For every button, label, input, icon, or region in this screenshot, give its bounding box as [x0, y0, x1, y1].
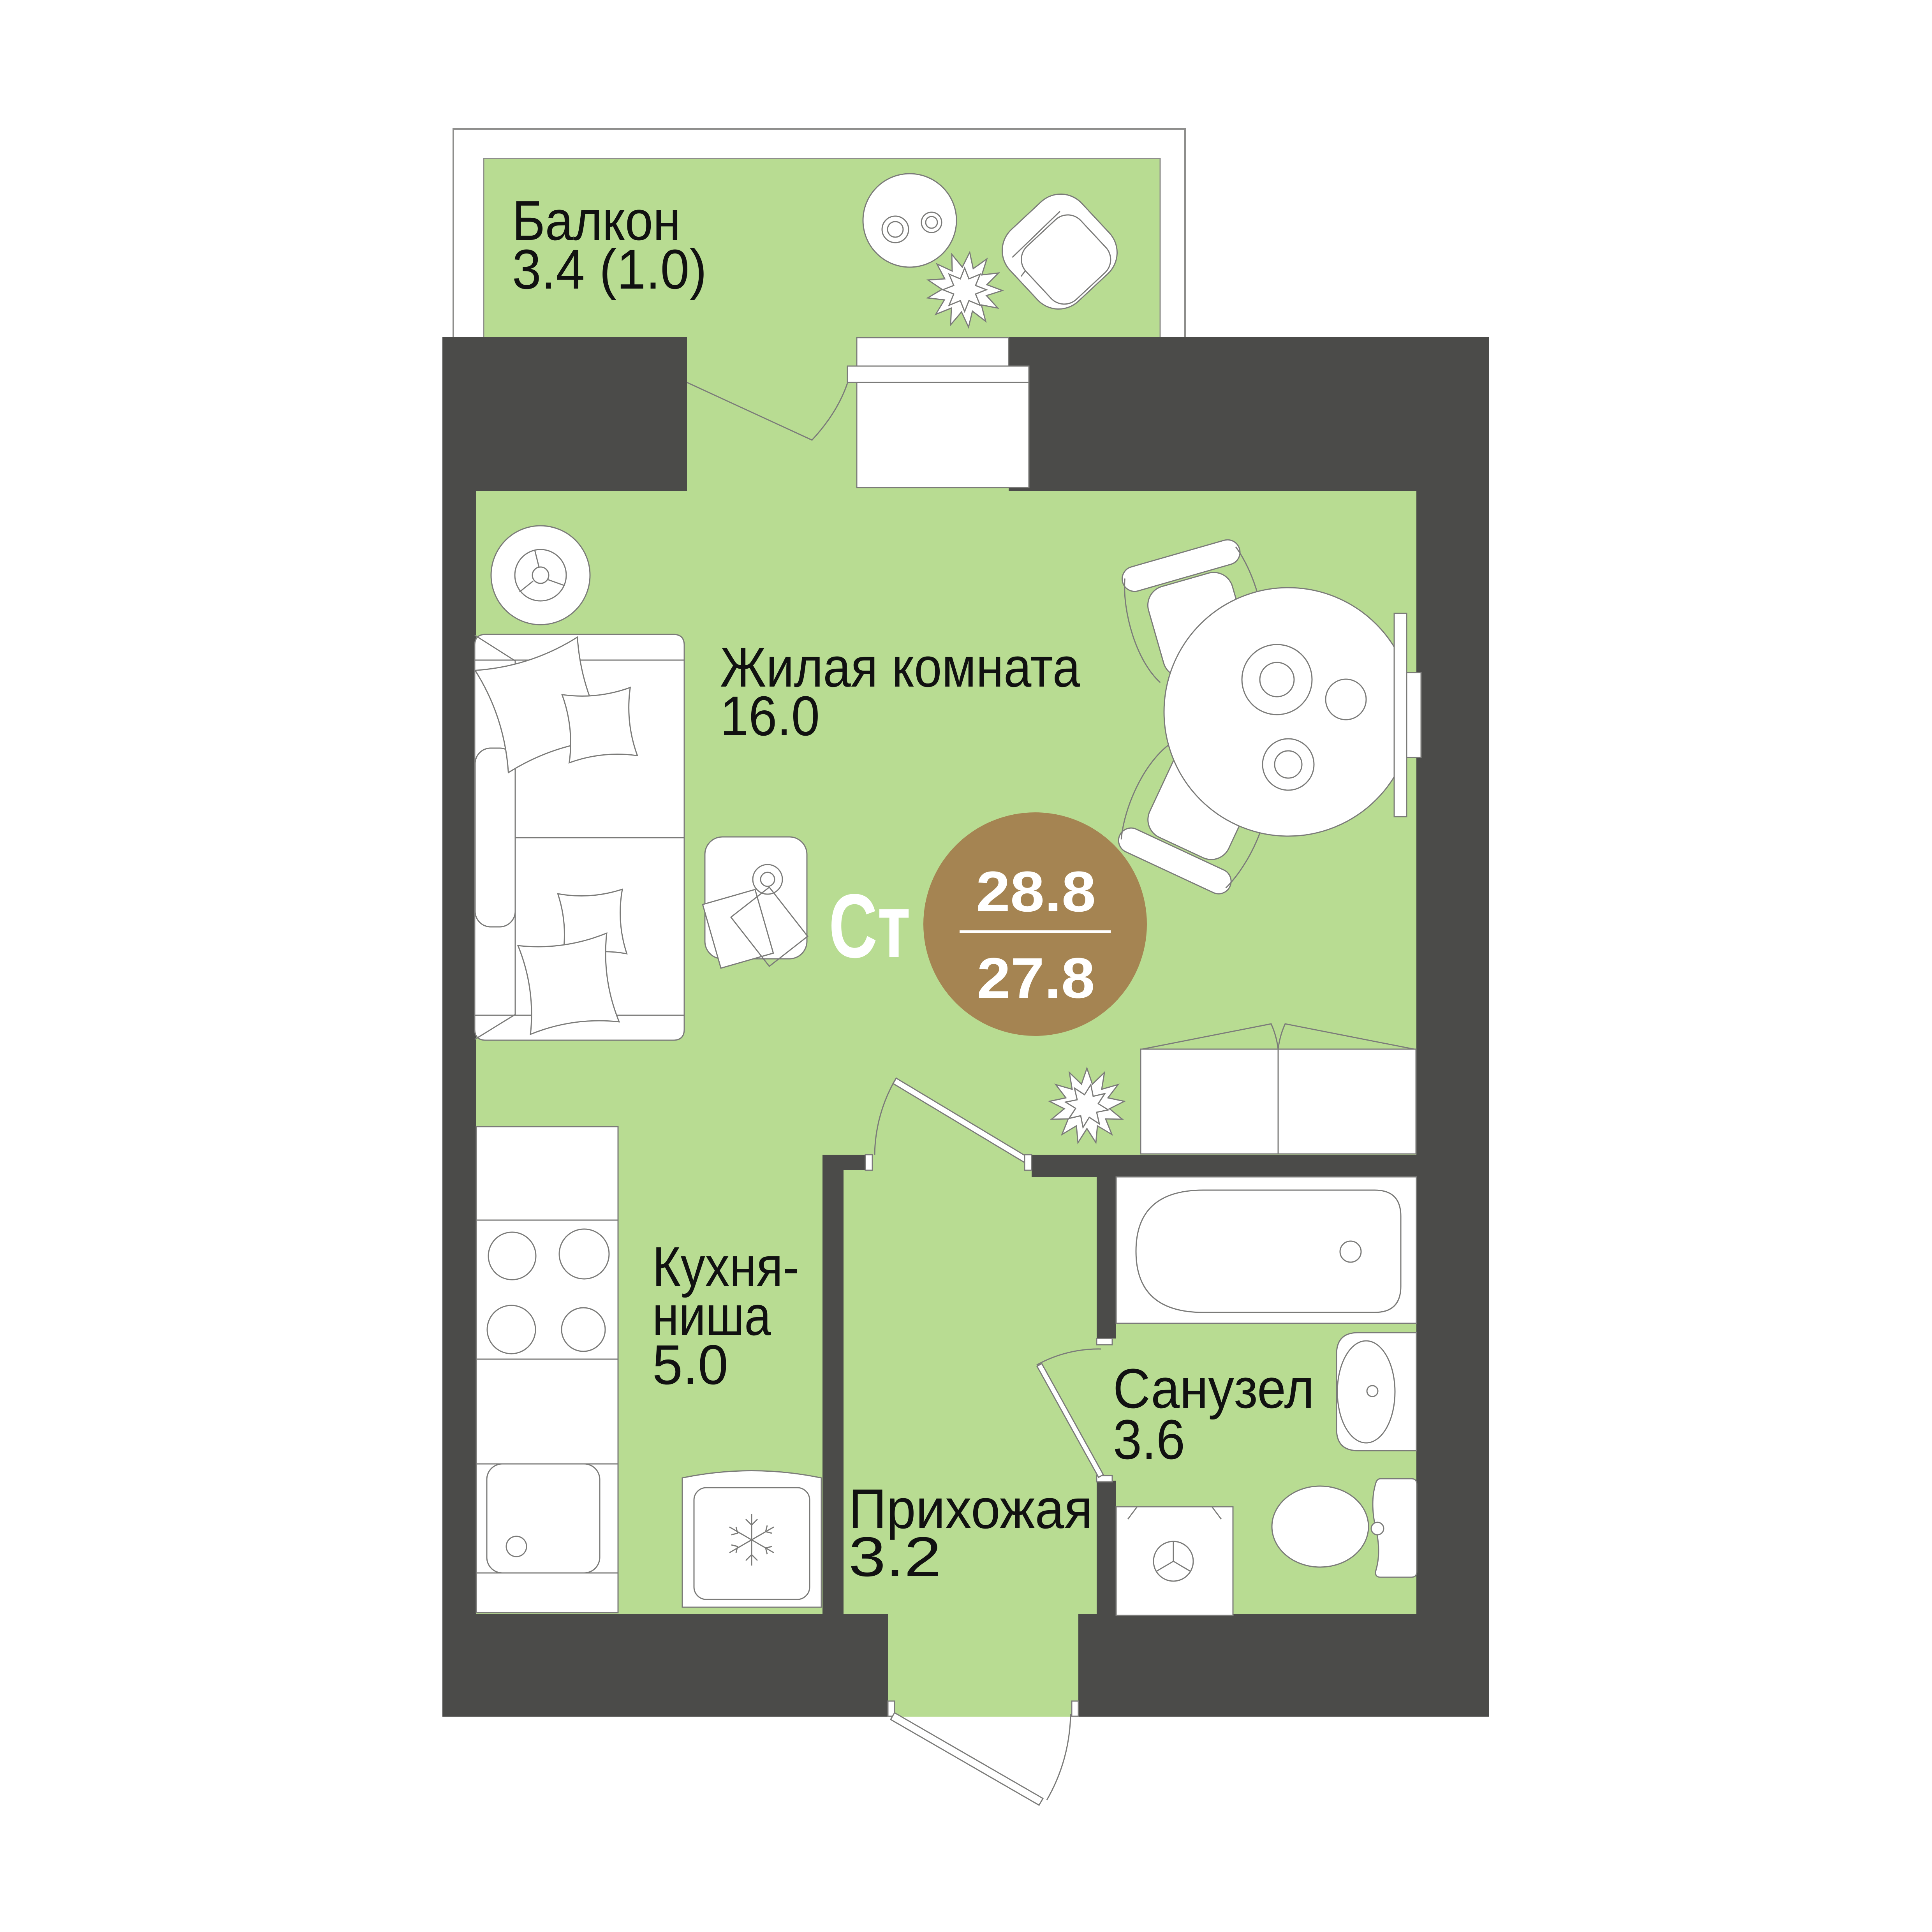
svg-text:28.8: 28.8 — [976, 860, 1096, 924]
svg-text:16.0: 16.0 — [720, 685, 820, 747]
svg-text:Ст: Ст — [829, 875, 911, 977]
svg-text:5.0: 5.0 — [652, 1333, 728, 1396]
svg-text:27.8: 27.8 — [977, 946, 1095, 1010]
svg-text:3.6: 3.6 — [1113, 1408, 1185, 1471]
svg-text:3.2: 3.2 — [849, 1525, 941, 1588]
svg-text:3.4 (1.0): 3.4 (1.0) — [512, 238, 707, 301]
